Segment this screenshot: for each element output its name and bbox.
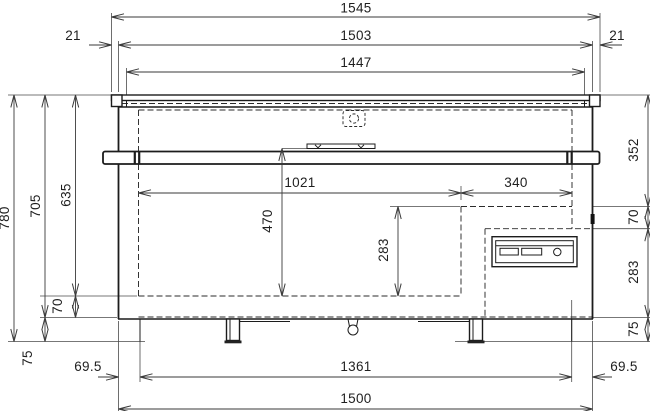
dim-label-height-to-base: 705: [28, 194, 43, 217]
dim-label-compartment-height: 283: [626, 260, 641, 283]
dim-height-to-base: 705: [28, 95, 45, 318]
dim-label-base-width: 1500: [340, 391, 371, 406]
dim-label-foot-span: 1361: [340, 359, 371, 374]
freezer-dimension-drawing: 1545 1503 21 21 1447 780 705 635 70 75 3…: [0, 0, 650, 411]
dim-label-foot-inset-left: 69.5: [74, 359, 101, 374]
dim-base-width: 1500: [119, 391, 593, 409]
handle-plate-detail: [307, 144, 375, 149]
dim-plinth-right: 75: [626, 318, 648, 342]
left-foot: [225, 319, 242, 343]
dim-lid-inner-width: 1447: [127, 55, 585, 72]
dim-foot-span: 1361: [140, 359, 572, 377]
dim-label-bottom-insulation: 70: [50, 298, 65, 314]
dim-label-interior-length: 1021: [284, 175, 315, 190]
dim-step-gap: 70: [626, 207, 648, 229]
hinge-tick: [591, 214, 595, 224]
dim-foot-inset-right: 69.5: [593, 359, 638, 377]
dim-label-plinth-right: 75: [626, 321, 641, 337]
dim-step-height: 283: [376, 207, 398, 297]
dim-interior-length: 1021: [139, 175, 462, 193]
drain-outlet: [348, 319, 358, 335]
dim-interior-depth: 470: [260, 149, 282, 297]
dim-label-foot-inset-right: 69.5: [610, 359, 637, 374]
dim-overall-height: 780: [0, 95, 14, 342]
dim-label-overall-height: 780: [0, 206, 12, 229]
dim-label-lid-inner: 1447: [340, 55, 371, 70]
dim-top-to-step: 352: [626, 95, 648, 207]
dim-lid-overall-width: 1545: [112, 1, 601, 18]
control-panel: [492, 237, 577, 267]
lid-assembly: [112, 95, 601, 107]
lid-lock-detail: [343, 111, 365, 127]
technical-drawing-canvas: 1545 1503 21 21 1447 780 705 635 70 75 3…: [0, 0, 650, 411]
body-shell: [118, 107, 595, 319]
extension-lines: [8, 13, 650, 411]
dim-label-overhang-left: 21: [65, 28, 81, 43]
dim-overhang-right: 21: [600, 28, 625, 45]
dim-label-top-to-step: 352: [626, 138, 641, 161]
right-foot: [468, 319, 485, 343]
dim-label-plinth-left: 75: [20, 350, 35, 366]
dim-bottom-insulation: 70: [50, 296, 76, 318]
dim-compartment-height: 283: [626, 229, 648, 318]
dim-label-step-length: 340: [504, 175, 527, 190]
dim-lid-body-width: 1503: [119, 28, 593, 45]
dim-label-step-height: 283: [376, 238, 391, 261]
dim-foot-inset-left: 69.5: [74, 359, 118, 377]
dim-label-step-gap: 70: [626, 209, 641, 225]
dim-label-lid-body: 1503: [340, 28, 371, 43]
dim-label-lid-overall: 1545: [340, 1, 371, 16]
dim-label-overhang-right: 21: [609, 28, 625, 43]
dim-interior-height: 635: [59, 95, 76, 296]
dim-label-interior-depth: 470: [260, 209, 275, 232]
dim-label-interior-height: 635: [59, 183, 74, 206]
dim-step-length: 340: [461, 175, 572, 193]
handle-bar: [103, 152, 600, 165]
dim-overhang-left: 21: [65, 28, 111, 45]
